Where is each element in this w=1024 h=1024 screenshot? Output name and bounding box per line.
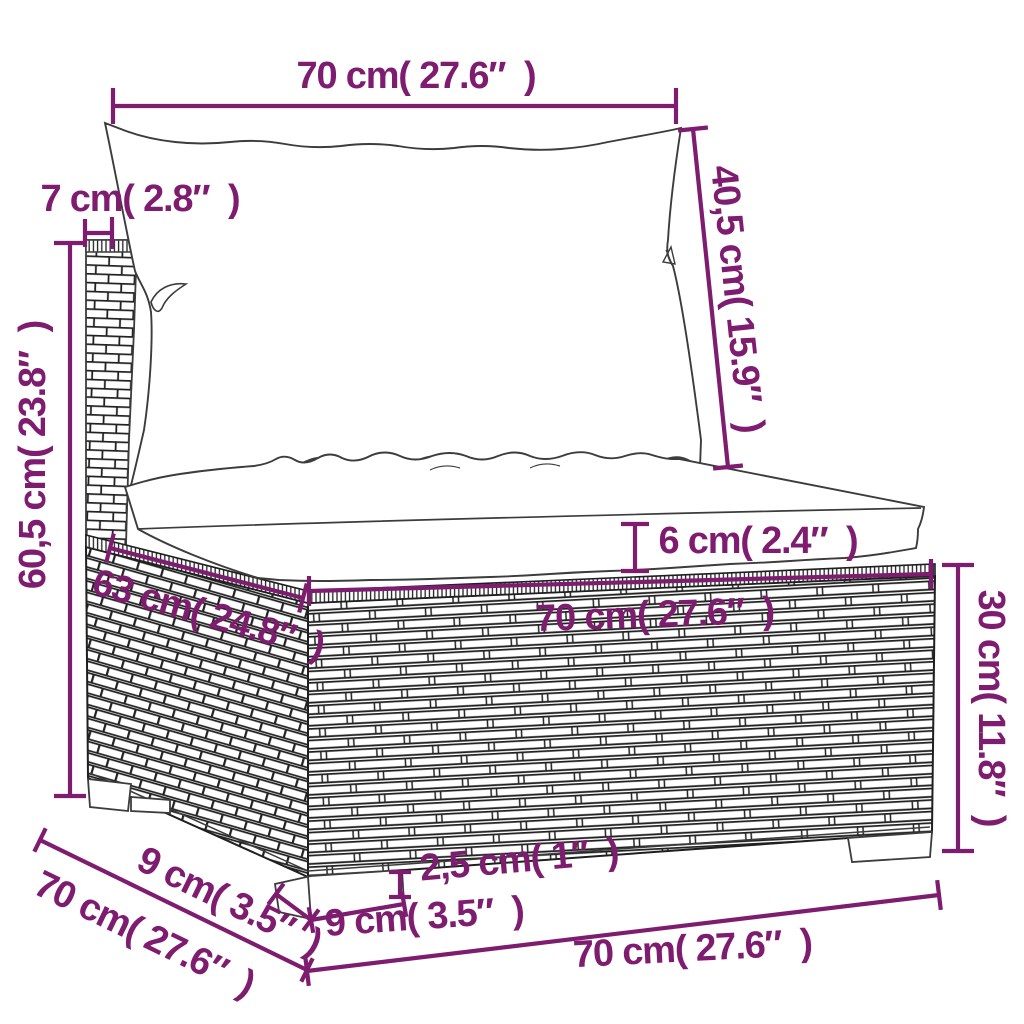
svg-text:70 cm( 27.6″ ): 70 cm( 27.6″ ) [297, 55, 536, 97]
svg-text:6 cm( 2.4″ ): 6 cm( 2.4″ ) [658, 520, 857, 562]
svg-text:60,5 cm( 23.8″ ): 60,5 cm( 23.8″ ) [12, 321, 54, 589]
svg-text:7 cm( 2.8″ ): 7 cm( 2.8″ ) [40, 178, 239, 220]
svg-text:30 cm( 11.8″ ): 30 cm( 11.8″ ) [970, 590, 1012, 827]
svg-text:70 cm( 27.6″ ): 70 cm( 27.6″ ) [534, 590, 774, 640]
